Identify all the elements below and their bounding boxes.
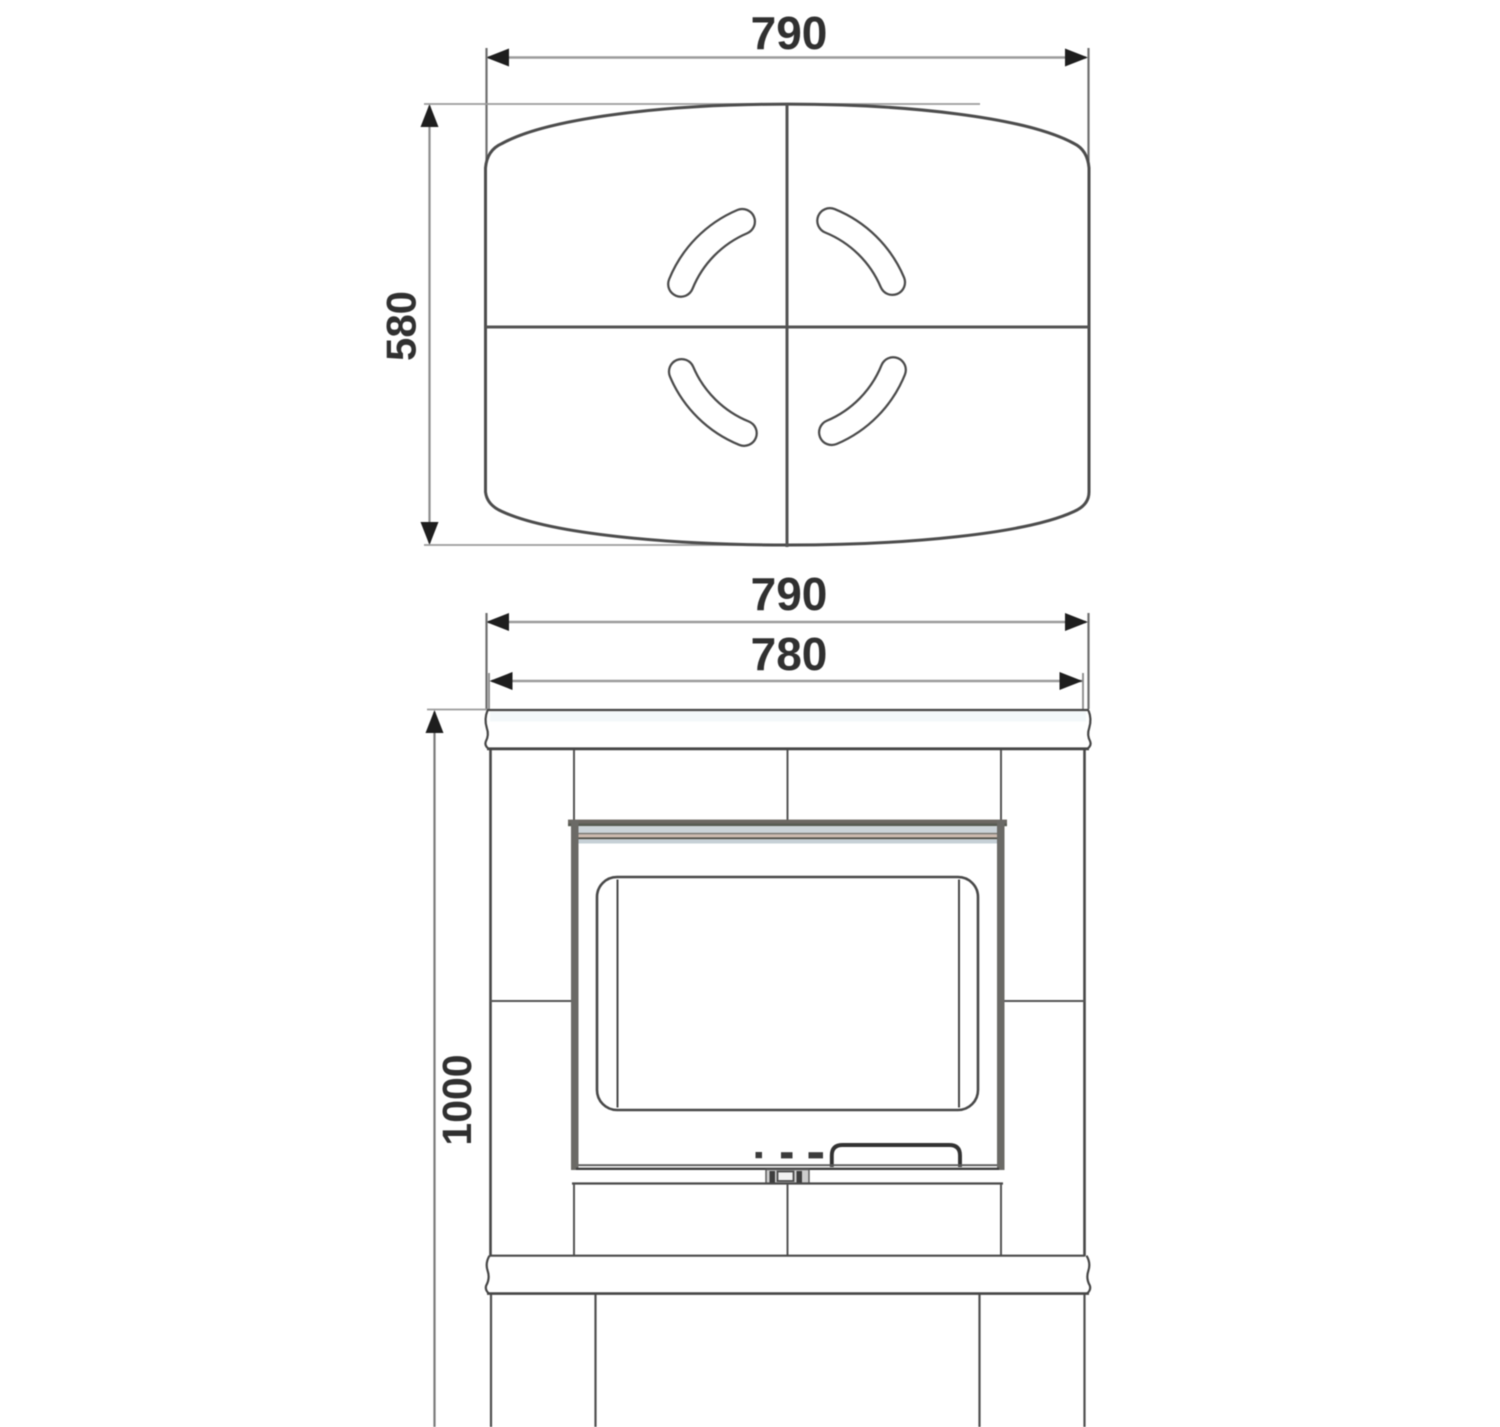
- svg-text:1000: 1000: [434, 1054, 480, 1145]
- svg-text:780: 780: [751, 628, 828, 680]
- svg-text:790: 790: [751, 7, 828, 59]
- svg-text:790: 790: [751, 568, 828, 620]
- svg-text:580: 580: [378, 291, 425, 361]
